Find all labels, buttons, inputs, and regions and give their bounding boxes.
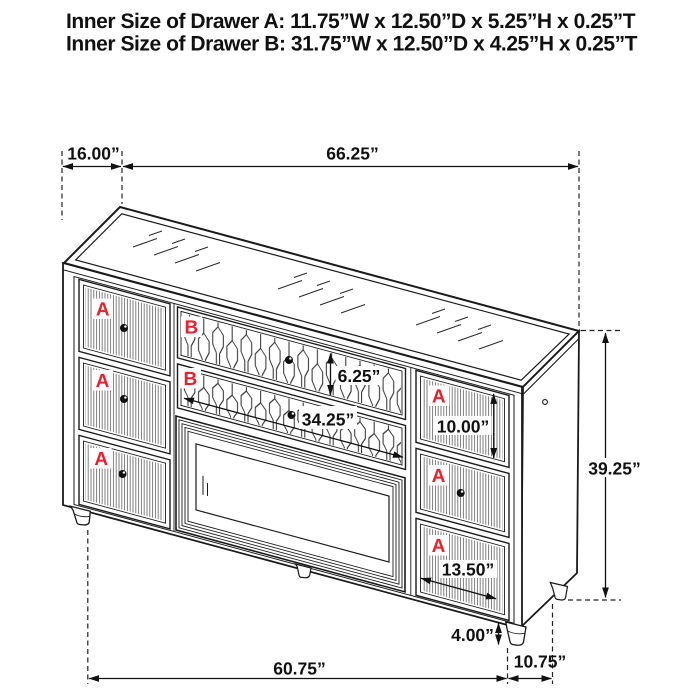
- svg-text:A: A: [94, 449, 108, 470]
- svg-text:4.00”: 4.00”: [451, 625, 494, 645]
- svg-text:16.00”: 16.00”: [67, 144, 120, 164]
- svg-text:Inner Size of Drawer B: 31.75”: Inner Size of Drawer B: 31.75”W x 12.50”…: [66, 33, 638, 56]
- svg-text:B: B: [185, 317, 199, 338]
- svg-text:Inner Size of Drawer A: 11.75”: Inner Size of Drawer A: 11.75”W x 12.50”…: [66, 10, 636, 33]
- svg-text:A: A: [432, 536, 446, 557]
- svg-text:66.25”: 66.25”: [326, 144, 379, 164]
- svg-text:10.75”: 10.75”: [514, 652, 567, 672]
- svg-text:34.25”: 34.25”: [302, 410, 355, 430]
- svg-text:10.00”: 10.00”: [437, 417, 490, 437]
- svg-text:A: A: [432, 466, 446, 487]
- svg-text:39.25”: 39.25”: [588, 459, 641, 479]
- svg-text:A: A: [96, 299, 110, 320]
- svg-text:A: A: [96, 371, 110, 392]
- svg-text:60.75”: 60.75”: [273, 659, 326, 679]
- svg-text:A: A: [432, 386, 446, 407]
- svg-text:13.50”: 13.50”: [442, 560, 495, 580]
- svg-text:6.25”: 6.25”: [338, 366, 381, 386]
- svg-text:B: B: [184, 369, 198, 390]
